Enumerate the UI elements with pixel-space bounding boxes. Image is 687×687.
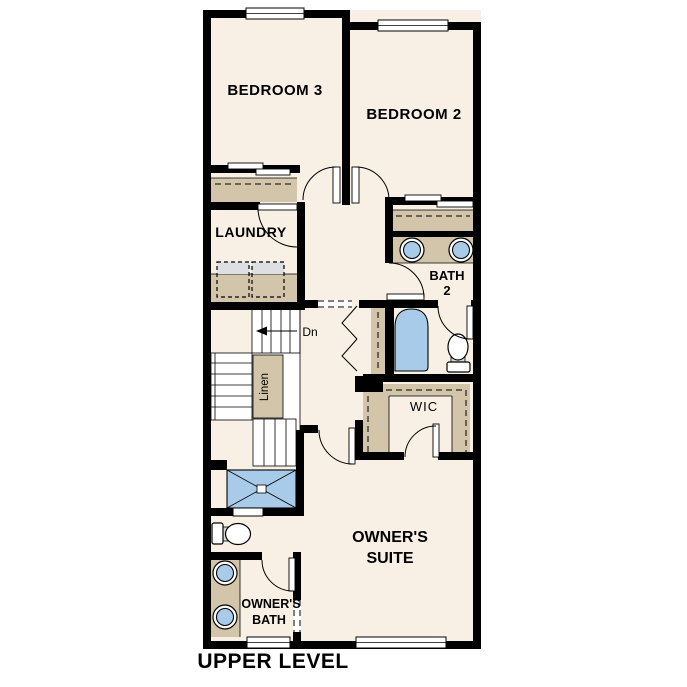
- wic-shelf-right: [452, 384, 470, 452]
- bath2-label-line2: 2: [443, 283, 450, 298]
- bedroom3-label: BEDROOM 3: [227, 82, 322, 99]
- wic-label: WIC: [410, 399, 438, 414]
- shower-icon: [227, 470, 296, 508]
- upper-level-floor-plan: BEDROOM 3 BEDROOM 2 LAUNDRY BATH 2 Dn Li…: [0, 0, 687, 687]
- hall-dashed-opening: [318, 300, 352, 308]
- bedroom2-label: BEDROOM 2: [366, 106, 461, 123]
- bathtub-icon: [395, 309, 428, 371]
- shower-room-opening: [233, 508, 263, 516]
- owners-suite-label-line1: OWNER'S: [352, 529, 428, 546]
- floor-plan-page: BEDROOM 3 BEDROOM 2 LAUNDRY BATH 2 Dn Li…: [0, 0, 687, 687]
- stairs-down-label: Dn: [302, 325, 317, 339]
- bedroom3-window-icon: [246, 8, 304, 19]
- owners-bath-label-line1: OWNER'S: [241, 597, 300, 611]
- bedroom3-closet: [211, 178, 297, 202]
- owners-suite-label-line2: SUITE: [366, 550, 413, 567]
- bedroom2-closet: [393, 210, 473, 231]
- bath2-sink-left-icon: [400, 238, 424, 262]
- owners-sink-bottom-icon: [213, 605, 237, 629]
- owners-toilet-icon: [212, 523, 251, 545]
- washer-icon: [217, 262, 249, 274]
- owners-suite-window-icon: [356, 637, 446, 648]
- owners-bath-window-icon: [247, 637, 290, 648]
- dryer-icon: [252, 262, 284, 274]
- owners-sink-top-icon: [213, 561, 237, 585]
- linen-label: Linen: [259, 373, 271, 401]
- laundry-label: LAUNDRY: [215, 224, 287, 240]
- plan-title: UPPER LEVEL: [197, 650, 348, 673]
- bedroom2-window-icon: [378, 20, 448, 31]
- bath2-sink-right-icon: [449, 238, 473, 262]
- bath2-toilet-icon: [447, 334, 470, 372]
- owners-bath-label-line2: BATH: [252, 613, 286, 627]
- bath2-label-line1: BATH: [429, 268, 464, 283]
